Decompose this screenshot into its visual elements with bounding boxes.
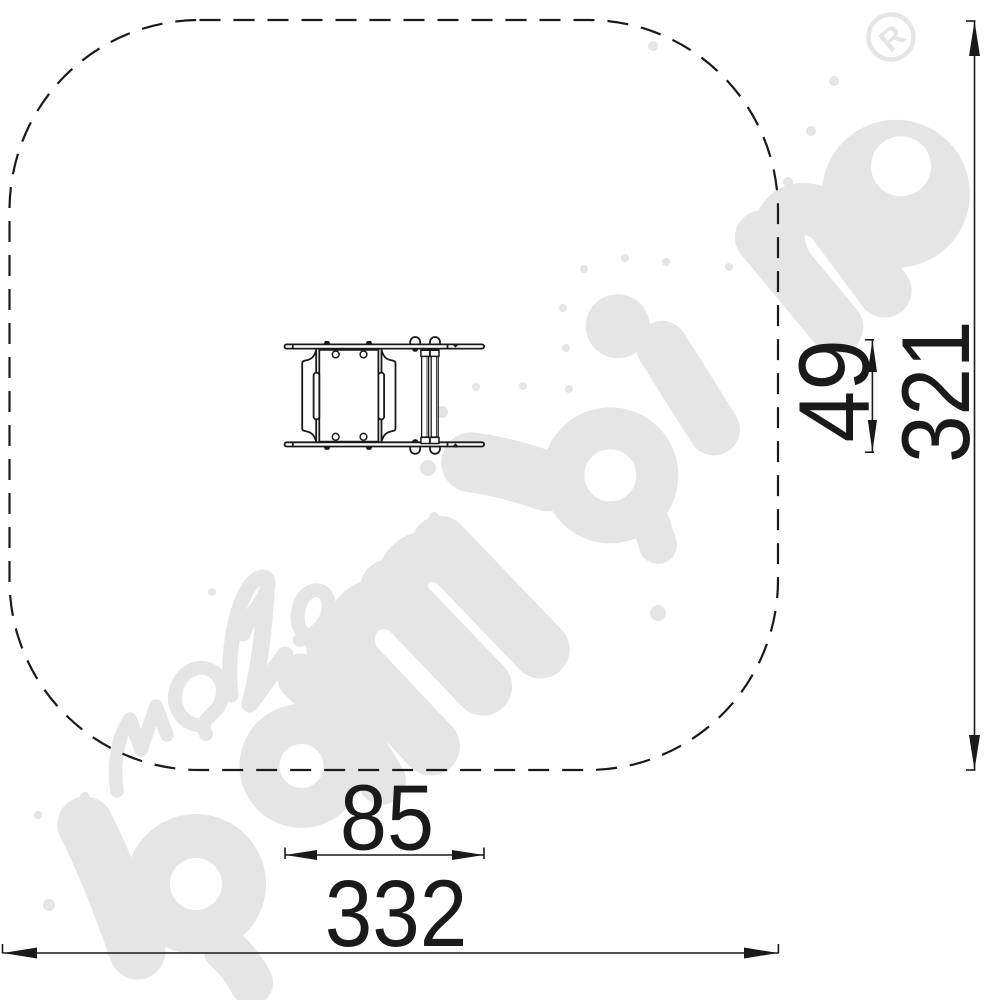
svg-text:49: 49: [779, 339, 890, 442]
svg-text:85: 85: [340, 766, 434, 870]
svg-text:321: 321: [882, 320, 990, 462]
svg-text:332: 332: [325, 861, 468, 967]
